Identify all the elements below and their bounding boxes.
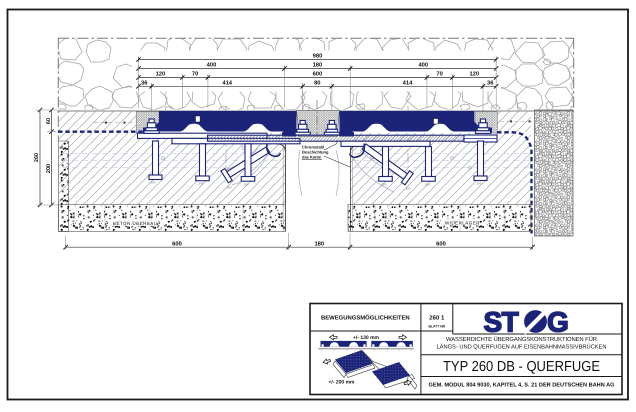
svg-text:←300: ←300: [403, 187, 411, 191]
svg-text:180: 180: [313, 62, 323, 69]
svg-text:260 1: 260 1: [429, 315, 445, 322]
svg-text:414: 414: [222, 81, 232, 87]
svg-text:+/- 200 mm: +/- 200 mm: [329, 380, 356, 386]
svg-text:400: 400: [418, 62, 428, 69]
svg-text:200: 200: [46, 164, 52, 173]
svg-text:TYP 260 DB - QUERFUGE: TYP 260 DB - QUERFUGE: [443, 359, 600, 375]
svg-text:600: 600: [172, 240, 182, 247]
svg-text:←300: ←300: [224, 186, 232, 190]
svg-text:60: 60: [46, 118, 52, 124]
svg-text:180: 180: [314, 240, 324, 247]
svg-text:BEWEGUNGSMÖGLICHKEITEN: BEWEGUNGSMÖGLICHKEITEN: [321, 314, 410, 322]
svg-text:WASSERDICHTE ÜBERGANGSKONSTRUK: WASSERDICHTE ÜBERGANGSKONSTRUKTIONEN FÜR: [446, 336, 597, 343]
svg-text:das Kante: das Kante: [302, 155, 322, 160]
svg-text:70: 70: [436, 71, 442, 78]
svg-text:←300: ←300: [379, 183, 387, 187]
svg-text:LÄNGS- UND QUERFUGEN AUF EISEN: LÄNGS- UND QUERFUGEN AUF EISENBAHNMASSIV…: [437, 344, 607, 351]
svg-text:36: 36: [487, 80, 494, 87]
svg-text:BETON ÜBERBAU: BETON ÜBERBAU: [113, 221, 157, 226]
svg-text:70: 70: [192, 71, 198, 78]
svg-text:400: 400: [207, 62, 217, 69]
svg-text:980: 980: [313, 53, 323, 60]
svg-text:BLATT NR: BLATT NR: [428, 325, 445, 329]
svg-text:120: 120: [469, 71, 479, 78]
svg-text:36: 36: [141, 80, 148, 87]
svg-text:600: 600: [436, 240, 446, 247]
svg-text:+/- 130 mm: +/- 130 mm: [353, 335, 380, 341]
svg-text:ST: ST: [484, 306, 519, 337]
svg-text:260: 260: [34, 153, 40, 162]
svg-text:GEM. MODUL 804 9030, KAPITEL 4: GEM. MODUL 804 9030, KAPITEL 4, S. 21 DE…: [429, 383, 616, 389]
svg-text:WIDERLAGER: WIDERLAGER: [445, 221, 480, 226]
svg-text:←300: ←300: [148, 181, 156, 185]
svg-text:414: 414: [403, 81, 413, 87]
svg-text:←300: ←300: [474, 182, 482, 186]
svg-text:600: 600: [313, 71, 323, 78]
svg-text:120: 120: [156, 71, 166, 78]
svg-text:←300: ←300: [196, 182, 204, 186]
svg-text:←300: ←300: [422, 183, 430, 187]
svg-text:G: G: [547, 306, 569, 337]
svg-text:←300: ←300: [241, 183, 249, 187]
svg-text:80: 80: [314, 80, 320, 87]
